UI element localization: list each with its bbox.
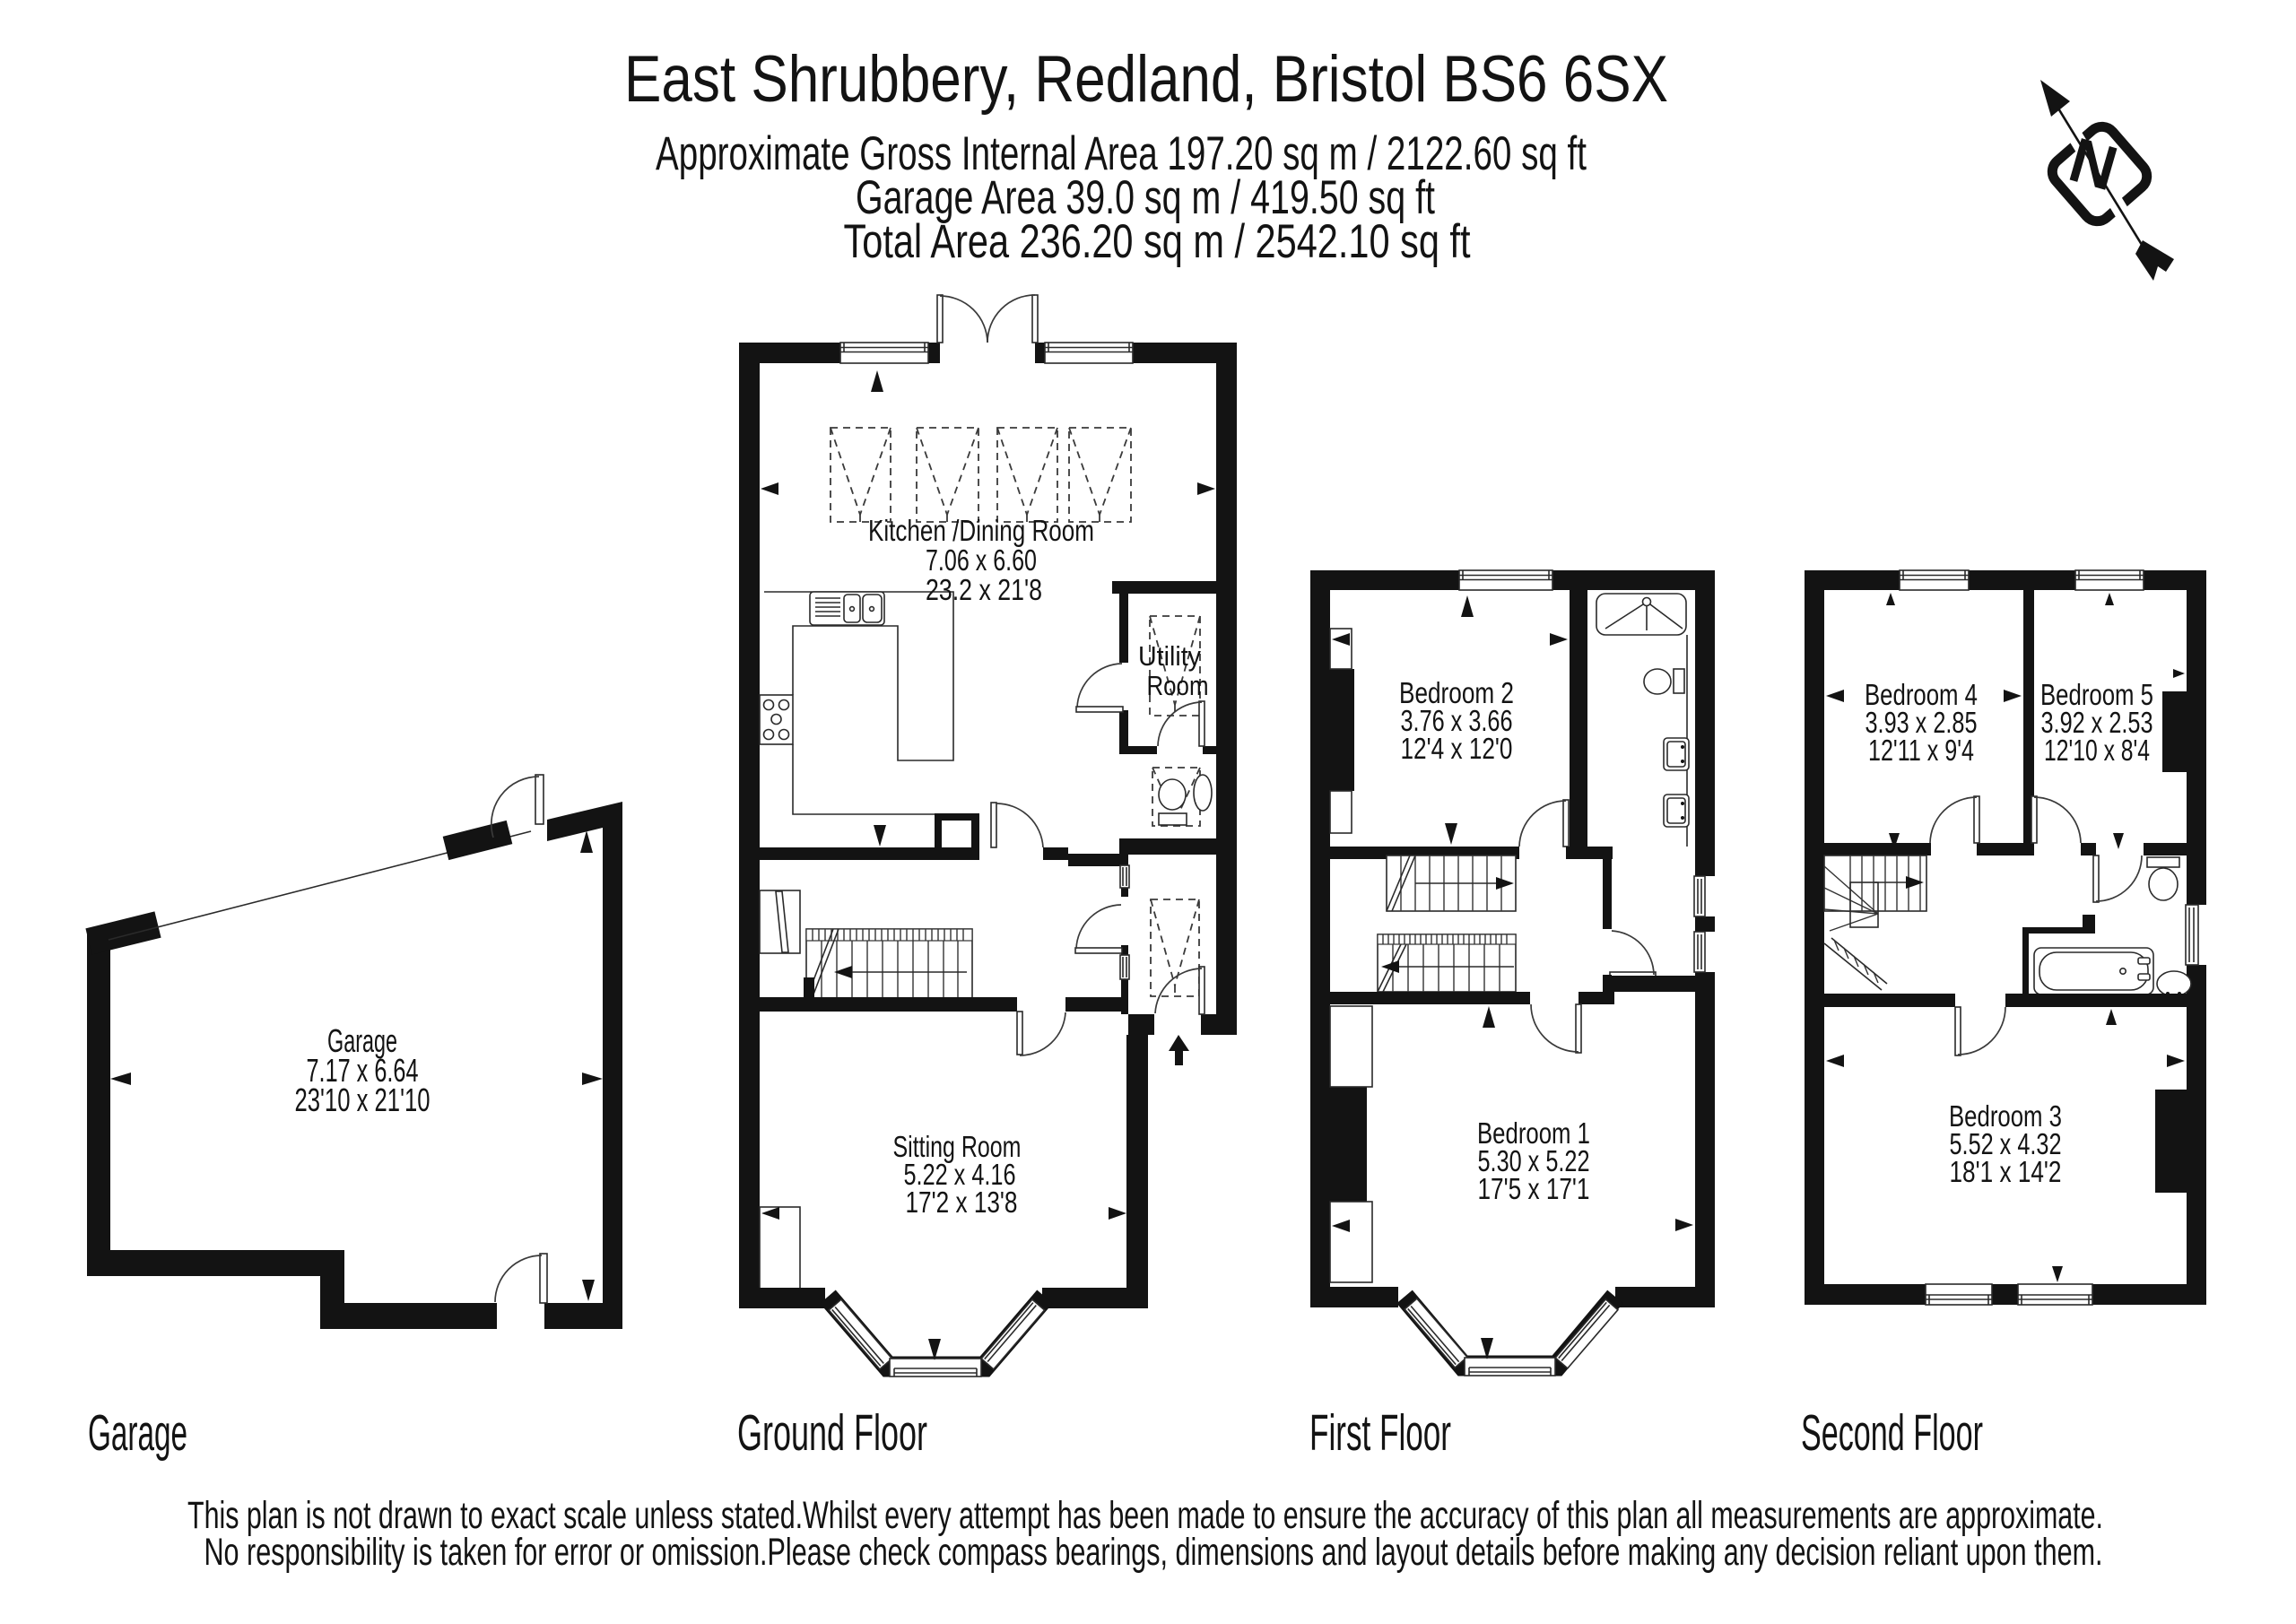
svg-text:17'5 x 17'1: 17'5 x 17'1 <box>1478 1172 1590 1205</box>
svg-text:Garage: Garage <box>88 1404 187 1462</box>
svg-text:Kitchen /Dining Room: Kitchen /Dining Room <box>868 514 1094 547</box>
svg-text:18'1 x 14'2: 18'1 x 14'2 <box>1950 1155 2062 1188</box>
svg-text:Room: Room <box>1147 670 1209 701</box>
svg-text:Total Area 236.20 sq m / 2542.: Total Area 236.20 sq m / 2542.10 sq ft <box>844 215 1471 268</box>
svg-text:17'2 x 13'8: 17'2 x 13'8 <box>906 1185 1018 1219</box>
svg-text:12'10 x 8'4: 12'10 x 8'4 <box>2044 734 2150 767</box>
svg-text:East Shrubbery, Redland, Brist: East Shrubbery, Redland, Bristol BS6 6SX <box>624 43 1668 116</box>
svg-text:No responsibility is taken for: No responsibility is taken for error or … <box>204 1531 2103 1574</box>
svg-text:12'4 x 12'0: 12'4 x 12'0 <box>1401 732 1513 765</box>
svg-text:Second Floor: Second Floor <box>1801 1404 1983 1462</box>
svg-text:First Floor: First Floor <box>1309 1404 1451 1462</box>
svg-text:23.2 x 21'8: 23.2 x 21'8 <box>926 573 1042 606</box>
svg-text:23'10 x 21'10: 23'10 x 21'10 <box>295 1081 430 1118</box>
svg-text:Utility: Utility <box>1138 640 1201 672</box>
svg-text:Ground Floor: Ground Floor <box>737 1404 927 1462</box>
svg-text:7.06 x 6.60: 7.06 x 6.60 <box>926 543 1037 577</box>
svg-text:12'11 x 9'4: 12'11 x 9'4 <box>1868 734 1974 767</box>
